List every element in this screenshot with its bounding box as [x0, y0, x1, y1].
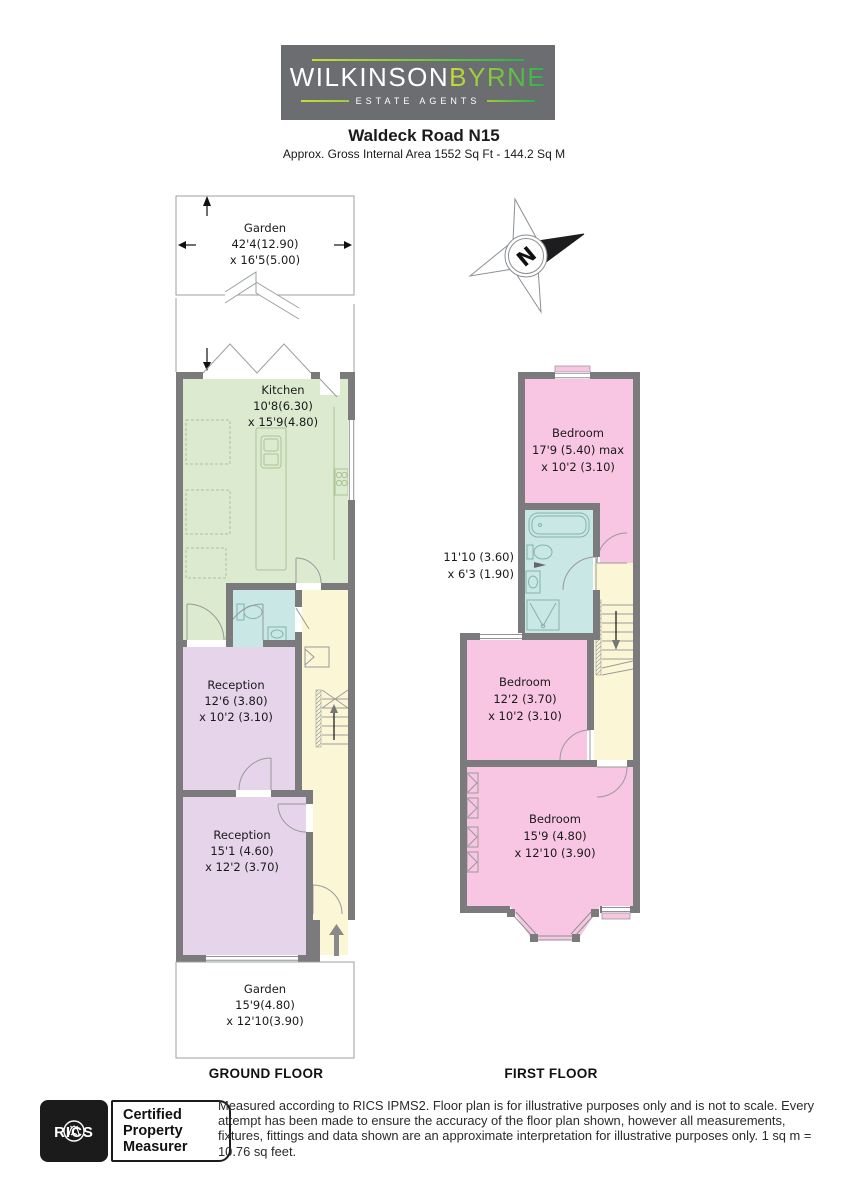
kitchen-side-door	[320, 379, 340, 397]
disclaimer-text: Measured according to RICS IPMS2. Floor …	[218, 1098, 818, 1159]
kitchen-dim1: 10'8(6.30)	[253, 399, 313, 413]
bedroom1-dim1: 17'9 (5.40) max	[532, 443, 624, 457]
bedroom1-leg	[600, 503, 633, 563]
rule-right	[487, 100, 535, 102]
bedroom2-name: Bedroom	[499, 675, 551, 689]
logo-gradient-rule	[312, 59, 524, 61]
reception1-dim2: x 10'2 (3.10)	[199, 710, 273, 724]
garden-top-dim2: x 16'5(5.00)	[230, 253, 300, 267]
bathroom-dim2: x 6'3 (1.90)	[448, 567, 515, 581]
page-title: Waldeck Road N15	[0, 126, 848, 146]
brand-part2: BYRNE	[449, 62, 546, 92]
ground-floor-plan: Garden 42'4(12.90) x 16'5(5.00)	[168, 192, 368, 1072]
dimension-arrow-down-icon	[203, 348, 211, 371]
bedroom3-dim1: 15'9 (4.80)	[523, 829, 586, 843]
reception1-dim1: 12'6 (3.80)	[204, 694, 267, 708]
brand-part1: WILKINSON	[290, 62, 449, 92]
reception2-name: Reception	[213, 828, 270, 842]
brand-sub-text: ESTATE AGENTS	[356, 96, 481, 106]
compass-icon: N	[468, 196, 593, 316]
hallway-upper	[302, 590, 348, 797]
bedroom2-dim2: x 10'2 (3.10)	[488, 709, 562, 723]
floorplan-page: WILKINSONBYRNE ESTATE AGENTS Waldeck Roa…	[0, 0, 848, 1200]
kitchen-name: Kitchen	[261, 383, 304, 397]
ground-floor-label: GROUND FLOOR	[166, 1066, 366, 1081]
garden-top-dim1: 42'4(12.90)	[231, 237, 298, 251]
rule-left	[301, 100, 349, 102]
garden-bottom-dim1: 15'9(4.80)	[235, 998, 295, 1012]
cert-line3: Measurer	[123, 1139, 229, 1155]
garden-bottom-area: Garden 15'9(4.80) x 12'10(3.90)	[176, 962, 354, 1058]
bedroom2-window	[480, 633, 522, 640]
kitchen-dim2: x 15'9(4.80)	[248, 415, 318, 429]
garden-top-area: Garden 42'4(12.90) x 16'5(5.00)	[176, 196, 354, 319]
rics-lion-icon	[61, 1119, 87, 1143]
first-floor-plan: Bedroom 17'9 (5.40) max x 10'2 (3.10) 11…	[450, 365, 650, 955]
bedroom3-window	[602, 906, 630, 919]
bedroom1-dim2: x 10'2 (3.10)	[541, 460, 615, 474]
rics-badge: RICS Certified Property Measurer	[40, 1100, 231, 1162]
bifold-doors-icon	[203, 344, 311, 373]
bedroom1-window	[555, 366, 590, 379]
bedroom3-name: Bedroom	[529, 812, 581, 826]
bedroom1-room	[525, 379, 633, 503]
first-floor-label: FIRST FLOOR	[451, 1066, 651, 1081]
reception2-room	[183, 797, 306, 955]
kitchen-room-lower	[183, 583, 226, 640]
reception2-dim1: 15'1 (4.60)	[210, 844, 273, 858]
garden-bottom-dim2: x 12'10(3.90)	[226, 1014, 303, 1028]
bedroom2-dim1: 12'2 (3.70)	[493, 692, 556, 706]
certified-property-measurer: Certified Property Measurer	[111, 1100, 231, 1162]
cert-line2: Property	[123, 1123, 229, 1139]
bedroom3-dim2: x 12'10 (3.90)	[514, 846, 595, 860]
agency-logo: WILKINSONBYRNE ESTATE AGENTS	[281, 45, 555, 120]
page-subtitle: Approx. Gross Internal Area 1552 Sq Ft -…	[0, 147, 848, 161]
brand-subline: ESTATE AGENTS	[301, 96, 536, 106]
kitchen-window	[348, 420, 355, 500]
reception2-dim2: x 12'2 (3.70)	[205, 860, 279, 874]
cert-line1: Certified	[123, 1107, 229, 1123]
bedroom1-name: Bedroom	[552, 426, 604, 440]
brand-name: WILKINSONBYRNE	[290, 64, 547, 91]
garden-strip	[176, 298, 354, 373]
rics-logo: RICS	[40, 1100, 108, 1162]
reception1-name: Reception	[207, 678, 264, 692]
bathroom-dim1: 11'10 (3.60)	[443, 550, 514, 564]
garden-top-name: Garden	[244, 221, 286, 235]
garden-bottom-name: Garden	[244, 982, 286, 996]
